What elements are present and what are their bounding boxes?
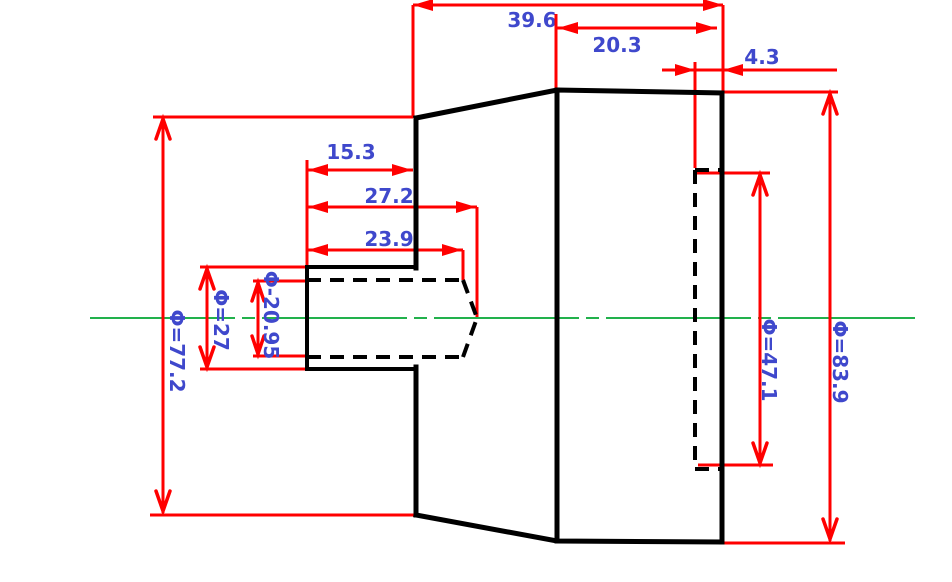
dim-label-20-3: 20.3 (592, 33, 641, 57)
arrow-right-icon (703, 0, 723, 11)
dim-label-27-2: 27.2 (364, 184, 413, 208)
dimension-23-9: 23.9 (307, 227, 463, 280)
drawing-canvas: 39.6 20.3 4.3 15.3 27.2 23.9 (0, 0, 952, 582)
dim-label-23-9: 23.9 (364, 227, 413, 251)
dim-label-dia-77-2: Φ=77.2 (165, 309, 189, 392)
arrow-left-icon (558, 22, 578, 34)
hidden-bore-lines (695, 170, 722, 469)
part-bottom-edge (416, 515, 722, 542)
dim-label-4-3: 4.3 (744, 45, 779, 69)
arrow-right-icon (442, 244, 462, 256)
dim-label-15-3: 15.3 (326, 140, 375, 164)
drill-point-top-line (463, 280, 477, 318)
arrow-left-icon (413, 0, 433, 11)
technical-drawing: 39.6 20.3 4.3 15.3 27.2 23.9 (0, 0, 952, 582)
arrow-right-icon (456, 201, 476, 213)
dimension-39-6: 39.6 (413, 0, 723, 118)
arrow-right-icon (696, 22, 716, 34)
arrow-right-icon (392, 164, 412, 176)
arrow-left-icon (308, 201, 328, 213)
dim-label-dia-20-95: Φ-20.95 (259, 271, 283, 360)
arrow-right-icon (675, 64, 695, 76)
arrow-left-icon (308, 244, 328, 256)
dim-label-dia-27: Φ=27 (209, 289, 233, 351)
dimension-20-3: 20.3 (556, 14, 717, 90)
drill-point-bottom-line (463, 318, 477, 357)
dim-label-dia-47-1: Φ=47.1 (757, 318, 781, 401)
dimension-dia-20-95: Φ-20.95 (252, 271, 307, 360)
part-top-edge (416, 90, 722, 118)
dimension-4-3: 4.3 (662, 45, 837, 168)
arrow-left-icon (308, 164, 328, 176)
dim-label-dia-83-9: Φ=83.9 (828, 320, 852, 403)
arrow-left-icon (723, 64, 743, 76)
dim-label-39-6: 39.6 (507, 8, 556, 32)
